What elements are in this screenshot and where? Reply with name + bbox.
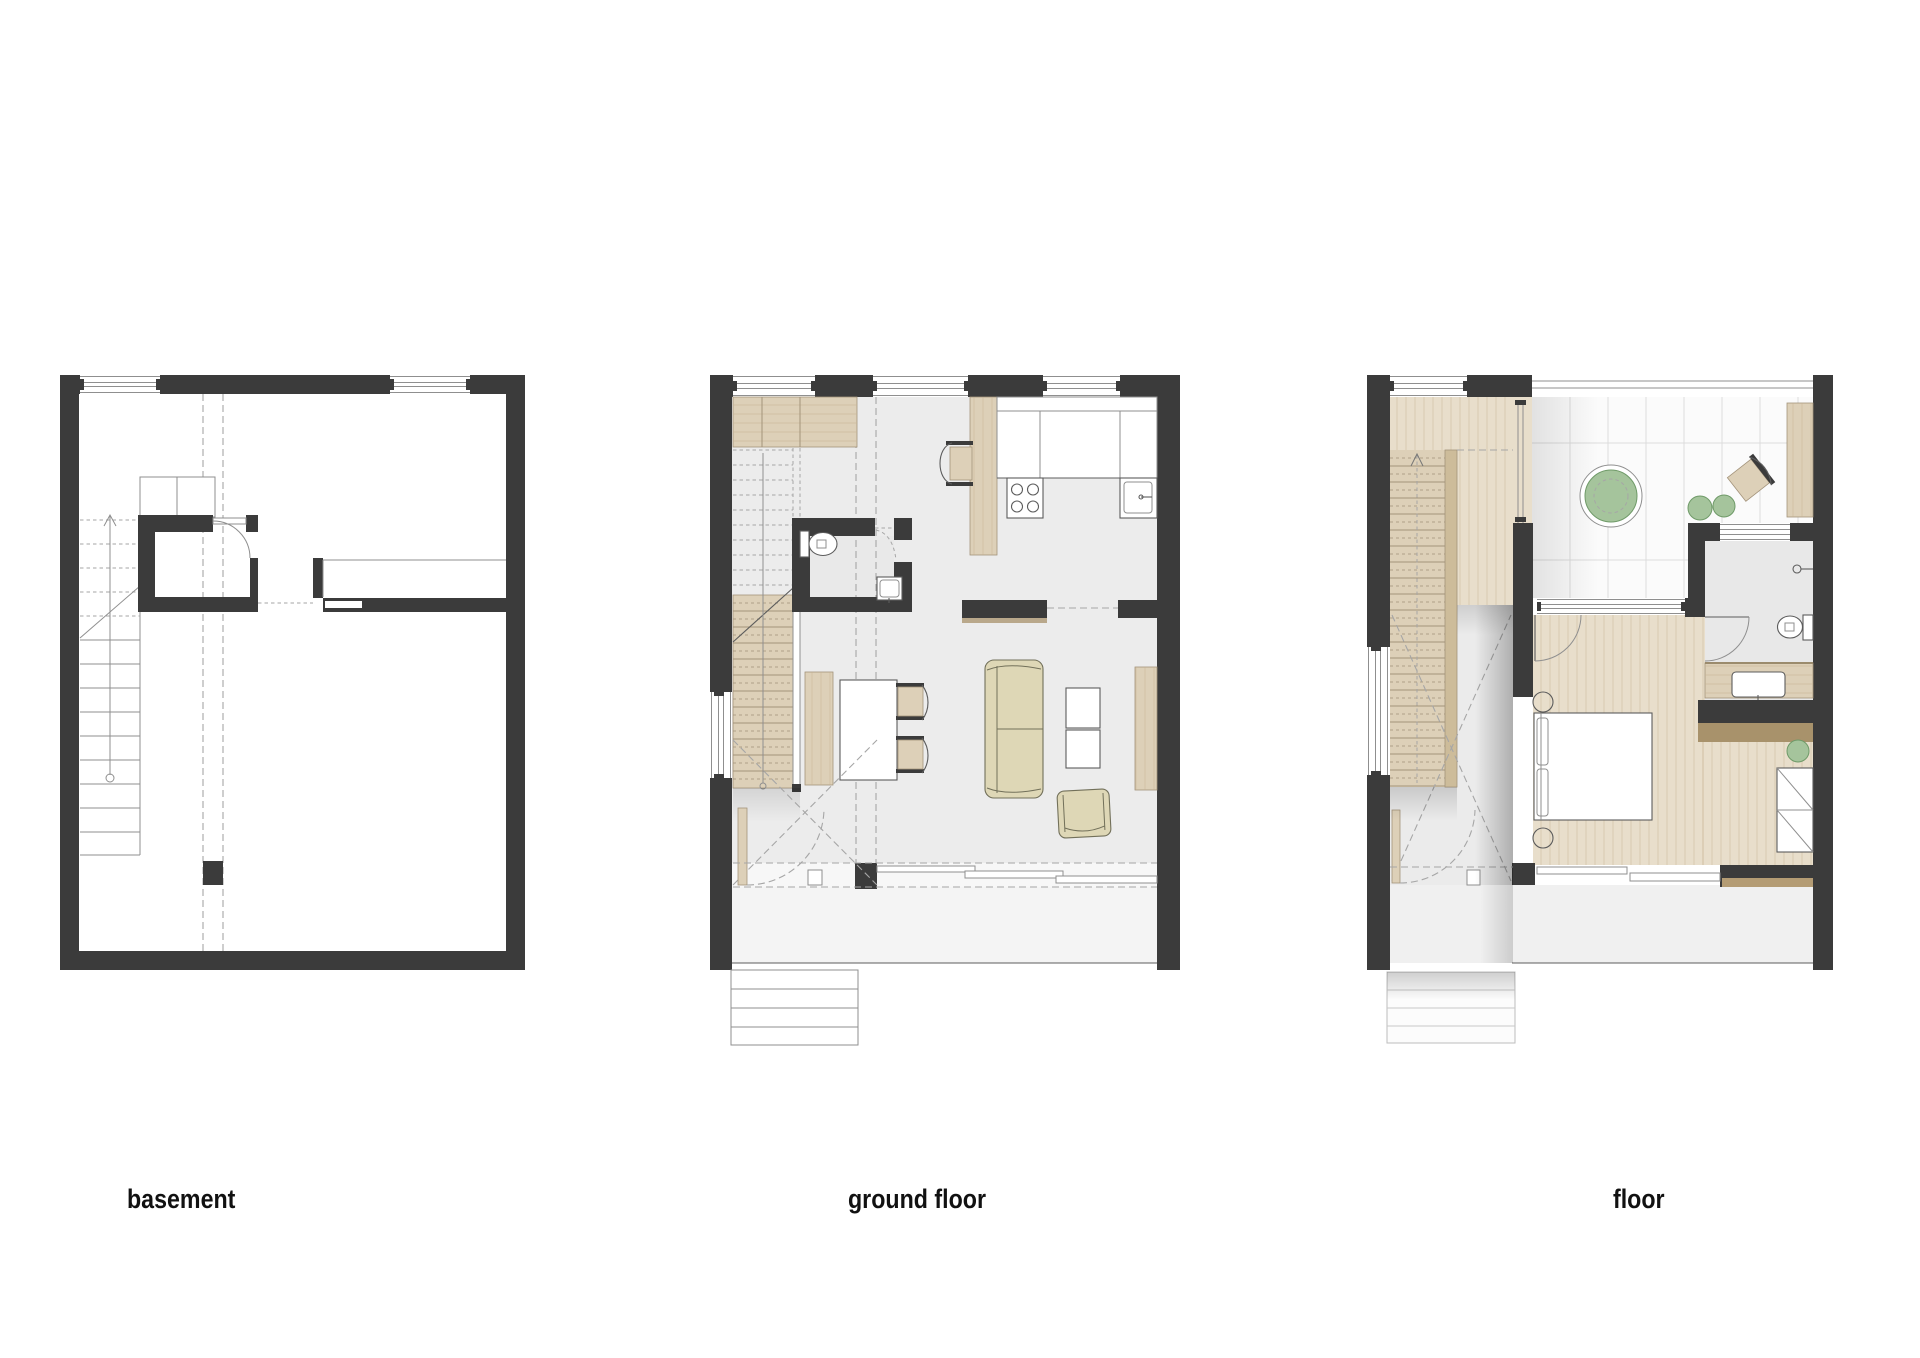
coffee-table xyxy=(1066,688,1100,728)
plan-label-basement: basement xyxy=(127,1184,235,1215)
floor-plans-page: basement ground floor floor xyxy=(0,0,1920,1358)
plant-icon xyxy=(1787,740,1809,762)
plan-label-ground-floor: ground floor xyxy=(848,1184,986,1215)
wardrobe xyxy=(1777,768,1813,852)
room-door-swing xyxy=(213,521,250,558)
toilet-icon xyxy=(1778,615,1814,640)
basement-storage-room xyxy=(138,515,258,612)
bathroom-south-wall xyxy=(1698,700,1813,723)
sink-icon xyxy=(1120,478,1157,518)
sliding-glass-panel xyxy=(1056,876,1157,883)
toilet-icon xyxy=(800,531,837,557)
vanity xyxy=(1705,663,1813,700)
sliding-glass-panel xyxy=(965,871,1063,878)
dresser-counter xyxy=(1698,723,1813,742)
entrance-door-leaf xyxy=(738,808,747,885)
balcony xyxy=(1390,885,1813,963)
bedroom-west-wall xyxy=(1513,523,1533,697)
kitchen-partition-wall xyxy=(962,600,1047,618)
kitchen-tall-units xyxy=(997,397,1157,478)
dining-chair xyxy=(896,683,928,720)
potted-tree-icon xyxy=(1580,465,1642,527)
basin-icon xyxy=(877,577,902,603)
vanity-sink-icon xyxy=(1732,672,1785,697)
bathroom-window xyxy=(1720,525,1790,540)
hob-icon xyxy=(1007,478,1043,518)
basement-stairs xyxy=(80,515,140,855)
basement-walls xyxy=(60,375,525,970)
ground-floor-plan xyxy=(700,365,1200,1070)
sliding-glass-panel xyxy=(1537,867,1627,874)
dining-table xyxy=(840,680,897,780)
basement-plan-drawing xyxy=(50,365,550,1065)
plant-icon xyxy=(1713,495,1735,517)
exterior-steps-below xyxy=(1387,972,1515,1043)
upper-floor-plan xyxy=(1357,365,1857,1070)
threshold xyxy=(808,870,822,885)
hall-wardrobe xyxy=(733,397,857,447)
ground-floor-plan-drawing xyxy=(700,365,1200,1065)
basement-plan xyxy=(50,365,550,1070)
sofa xyxy=(985,660,1043,798)
sliding-glass-panel xyxy=(1630,873,1720,881)
coffee-table xyxy=(1066,730,1100,768)
dining-chair xyxy=(896,736,928,773)
stair-rail xyxy=(793,593,800,788)
exterior-steps xyxy=(731,970,858,1045)
basement-column xyxy=(203,861,223,885)
basement-storage-shelf xyxy=(140,477,215,517)
terrace-railing xyxy=(1532,381,1813,388)
basement-bench-wall xyxy=(258,558,506,612)
plan-label-floor: floor xyxy=(1613,1184,1665,1215)
upper-floor-plan-drawing xyxy=(1357,365,1857,1065)
sliding-glass-panel xyxy=(877,866,975,872)
bedroom-terrace-window xyxy=(1537,600,1685,614)
bed xyxy=(1534,713,1652,820)
armchair xyxy=(1057,789,1111,839)
plant-icon xyxy=(1688,496,1712,520)
